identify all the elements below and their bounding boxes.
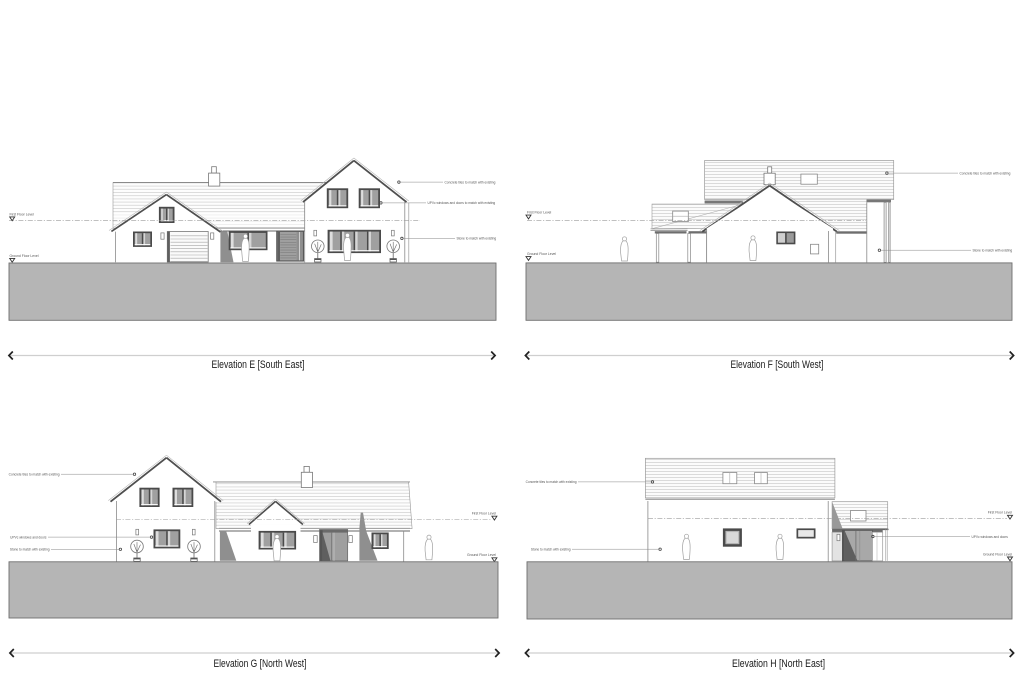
svg-text:Stone to match with existing: Stone to match with existing — [457, 237, 497, 241]
svg-text:Elevation E [South East]: Elevation E [South East] — [212, 359, 305, 371]
svg-text:Concrete tiles to match with e: Concrete tiles to match with existing — [526, 480, 577, 484]
svg-text:Ground Floor Level: Ground Floor Level — [467, 553, 496, 557]
svg-text:Stone to match with existing: Stone to match with existing — [531, 547, 571, 551]
svg-text:Concrete tiles to match with e: Concrete tiles to match with existing — [9, 472, 60, 476]
svg-text:Stone to match with existing: Stone to match with existing — [10, 548, 50, 552]
svg-text:Elevation F [South West]: Elevation F [South West] — [731, 359, 824, 371]
svg-text:Ground Floor Level: Ground Floor Level — [527, 252, 556, 256]
svg-text:Stone to match with existing: Stone to match with existing — [973, 248, 1013, 252]
svg-text:First Floor Level: First Floor Level — [10, 212, 35, 216]
svg-text:First Floor Level: First Floor Level — [472, 512, 497, 516]
svg-text:UPVc windows and doors to mat: UPVc windows and doors to match with exi… — [428, 201, 496, 205]
svg-text:Ground Floor Level: Ground Floor Level — [983, 552, 1012, 556]
svg-text:Ground Floor Level: Ground Floor Level — [10, 254, 39, 258]
svg-text:First Floor Level: First Floor Level — [527, 211, 552, 215]
svg-text:First Floor Level: First Floor Level — [988, 511, 1013, 515]
svg-text:Concrete tiles to match with e: Concrete tiles to match with existing — [960, 171, 1011, 175]
svg-text:UPVc windows and doors: UPVc windows and doors — [10, 535, 47, 539]
svg-text:UPVc windows and doors: UPVc windows and doors — [972, 535, 1009, 539]
svg-text:Elevation G [North West]: Elevation G [North West] — [214, 658, 307, 670]
svg-text:Concrete tiles to match with e: Concrete tiles to match with existing — [445, 180, 496, 184]
svg-text:Elevation H [North East]: Elevation H [North East] — [732, 658, 825, 670]
